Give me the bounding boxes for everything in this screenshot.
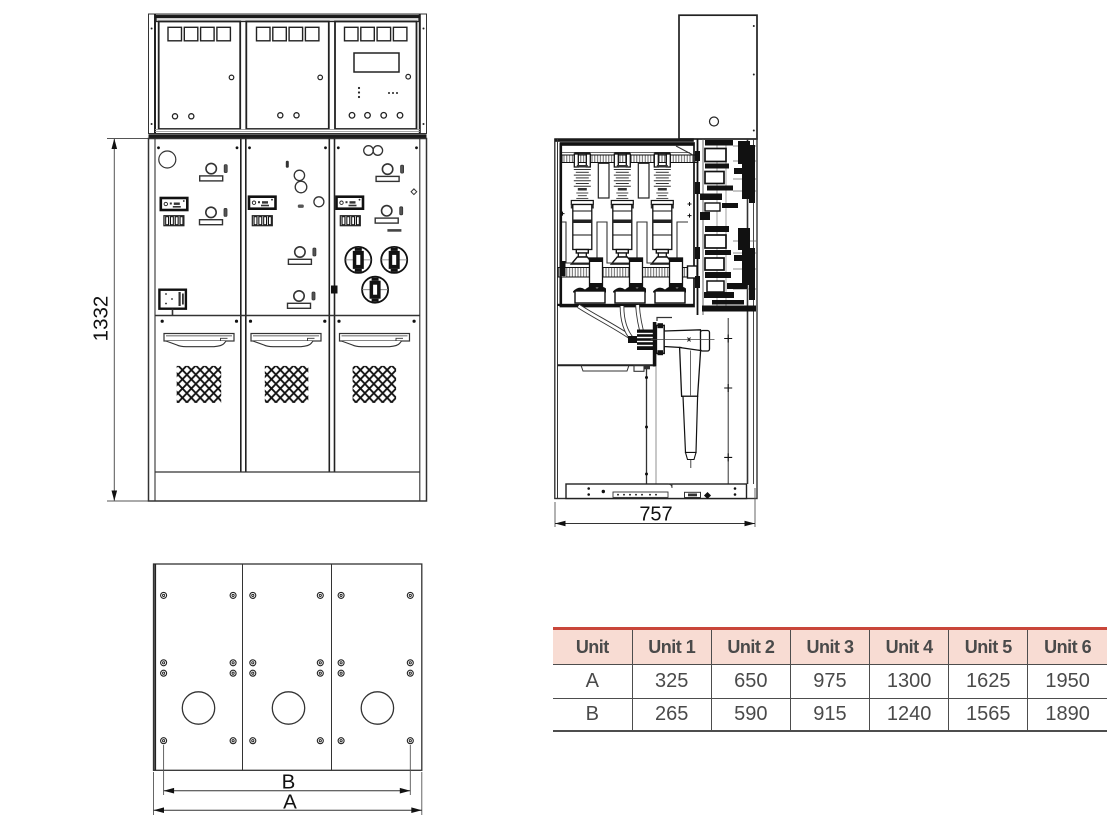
svg-text:1332: 1332 xyxy=(90,296,113,342)
svg-text:757: 757 xyxy=(639,504,672,526)
svg-text:A: A xyxy=(283,791,297,814)
